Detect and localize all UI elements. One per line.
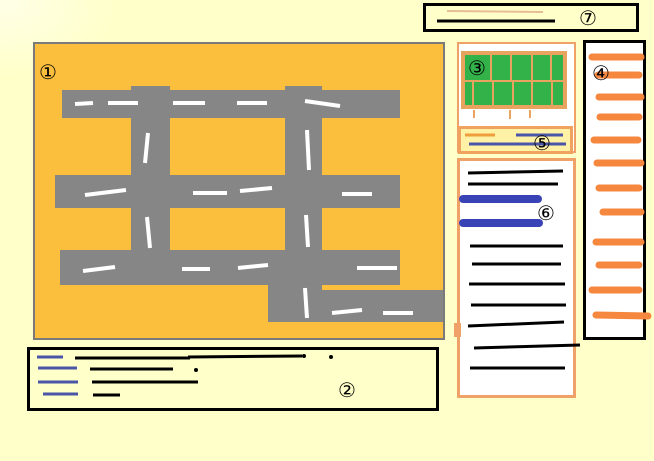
- region-label-5: ⑤: [533, 133, 551, 153]
- title-bar[interactable]: ⑦: [423, 3, 639, 32]
- region-label-2: ②: [338, 380, 356, 400]
- region-label-4: ④: [592, 63, 610, 83]
- map-canvas[interactable]: ①: [33, 42, 445, 340]
- list-lines-layer: [460, 161, 573, 395]
- sidebar-item-list[interactable]: ④: [583, 40, 646, 340]
- region-label-6: ⑥: [537, 203, 555, 223]
- toolbar-lines-layer: [461, 129, 570, 151]
- results-list[interactable]: ⑥: [457, 158, 576, 398]
- title-bar-lines-layer: [426, 6, 636, 29]
- legend-panel: ②: [27, 347, 439, 411]
- wireframe-page: ① ② ⑦ ③ ⑤ ⑥ ④: [0, 0, 654, 461]
- map-roads-layer: [35, 44, 443, 338]
- region-label-1: ①: [39, 62, 57, 82]
- region-label-3: ③: [468, 58, 486, 78]
- list-side-tab: [454, 323, 461, 337]
- sidebar-strokes-layer: [586, 43, 643, 337]
- grid-table-panel[interactable]: ③ ⑤: [457, 42, 576, 153]
- toolbar-strip[interactable]: ⑤: [458, 126, 573, 154]
- region-label-7: ⑦: [579, 8, 597, 28]
- legend-lines-layer: [30, 350, 436, 408]
